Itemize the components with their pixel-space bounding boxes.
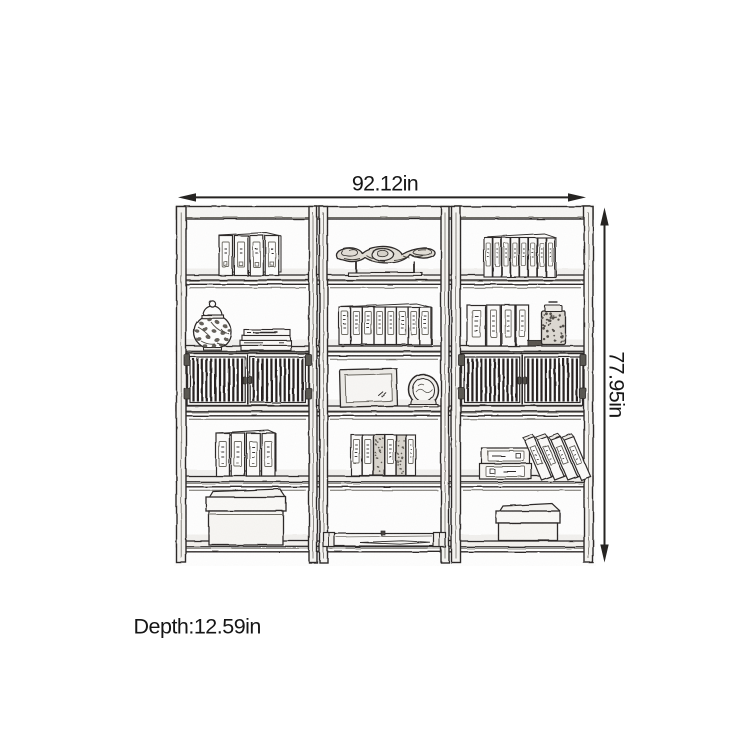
svg-text:77.95in: 77.95in: [605, 351, 629, 417]
svg-text:Depth:12.59in: Depth:12.59in: [134, 615, 261, 639]
svg-text:92.12in: 92.12in: [352, 172, 418, 196]
